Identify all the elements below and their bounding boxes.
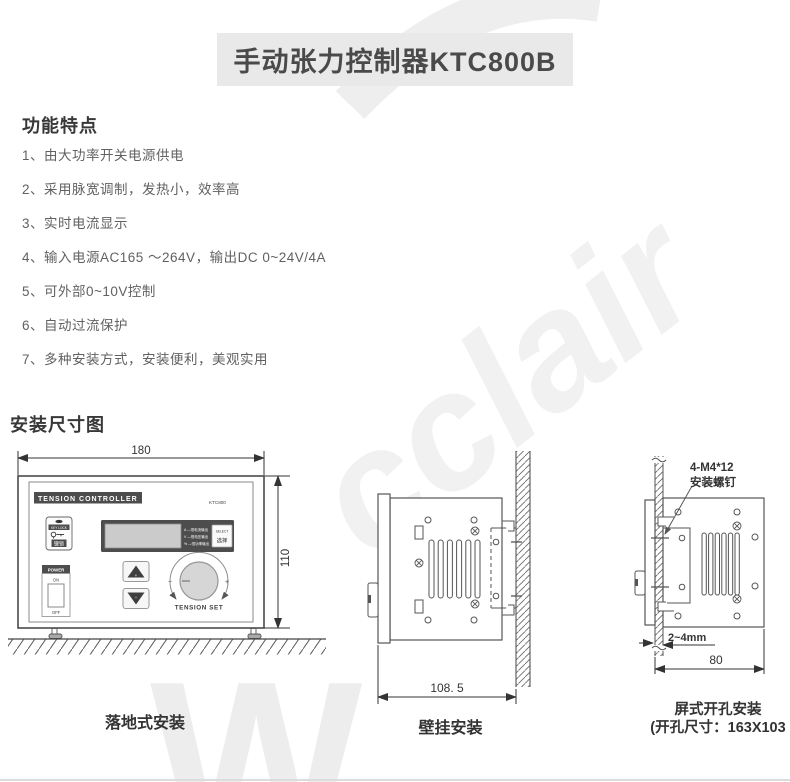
- knob-plus-label: +: [225, 579, 229, 586]
- keylock-en-label: KEY LOCK: [51, 526, 68, 530]
- feature-item: 5、可外部0~10V控制: [22, 275, 326, 309]
- page-title: 手动张力控制器KTC800B: [217, 33, 572, 86]
- bottom-divider: [0, 779, 790, 781]
- legend-power: % —恒功率输出: [184, 541, 210, 546]
- side-tab: [368, 583, 378, 617]
- screw-note-line1: 4-M4*12: [690, 462, 733, 474]
- legend-voltage: V —恒电压输出: [184, 534, 209, 539]
- feature-list: 1、由大功率开关电源供电 2、采用脉宽调制，发热小，效率高 3、实时电流显示 4…: [22, 139, 326, 377]
- down-minus-glyph: −: [135, 595, 138, 600]
- brand-label: TENSION CONTROLLER: [38, 496, 138, 503]
- legend-current: A —恒电流输出: [184, 527, 209, 532]
- features-heading: 功能特点: [22, 112, 98, 138]
- feature-item: 6、自动过流保护: [22, 309, 326, 343]
- install-heading: 安装尺寸图: [10, 411, 105, 437]
- power-switch-drawing: POWER ON OFF: [42, 565, 70, 617]
- document-content: 手动张力控制器KTC800B 功能特点 1、由大功率开关电源供电 2、采用脉宽调…: [0, 0, 790, 782]
- feet: [49, 629, 261, 639]
- wall-install-diagram: 108. 5: [356, 443, 584, 715]
- model-label: KTC800: [209, 500, 226, 505]
- front-bezel-side: [378, 494, 390, 643]
- knob-minus-label: −: [168, 579, 172, 586]
- display-assembly: A —恒电流输出 V —恒电压输出 % —恒功率输出 SELECT 选择: [101, 520, 234, 552]
- knob-label: TENSION SET: [175, 605, 224, 612]
- dim-height-label: 110: [280, 549, 292, 567]
- lcd-display: [105, 524, 181, 548]
- rocker: [48, 584, 64, 607]
- select-button-drawing: SELECT 选择: [212, 525, 232, 547]
- title-row: 手动张力控制器KTC800B: [0, 33, 790, 86]
- up-button-drawing: +: [123, 562, 149, 582]
- panel-caption: 屏式开孔安装 (开孔尺寸：163X103: [638, 702, 790, 737]
- page: cclair W 手动张力控制器KTC800B 功能特点 1、由大功率开关电源供…: [0, 0, 790, 782]
- power-label: POWER: [48, 567, 65, 572]
- dim-depth-label: 80: [709, 653, 723, 667]
- feature-item: 4、输入电源AC165 ～264V，输出DC 0~24V/4A: [22, 241, 326, 275]
- select-en-label: SELECT: [216, 530, 229, 534]
- side-tab: [635, 571, 645, 595]
- power-on-label: ON: [53, 578, 59, 583]
- device-body-side: [390, 498, 502, 640]
- floor-install-diagram: 180 110 TENSION CONTROLLER KTC800 KEY LO…: [6, 441, 336, 673]
- ground-hatching: [8, 639, 326, 655]
- panel-caption-line1: 屏式开孔安装: [638, 702, 790, 720]
- feature-item: 1、由大功率开关电源供电: [22, 139, 326, 173]
- up-plus-glyph: +: [135, 573, 138, 578]
- power-off-label: OFF: [52, 610, 61, 615]
- feature-item: 3、实时电流显示: [22, 207, 326, 241]
- screw-note-line2: 安装螺钉: [690, 475, 736, 489]
- dim-depth-label: 108. 5: [430, 681, 464, 695]
- feature-item: 7、多种安装方式，安装便利，美观实用: [22, 343, 326, 377]
- keylock-zh-label: 键锁: [54, 540, 64, 547]
- panel-caption-line2: (开孔尺寸：163X103: [638, 720, 790, 738]
- dim-width-label: 180: [131, 445, 150, 457]
- dim-depth-108: [378, 645, 516, 704]
- floor-caption: 落地式安装: [85, 709, 205, 733]
- keylock-led: [55, 520, 62, 523]
- panel-install-diagram: 4-M4*12 安装螺钉 2~4mm 80: [612, 438, 790, 720]
- dim-thickness-label: 2~4mm: [668, 632, 706, 644]
- wall-section: [516, 451, 530, 687]
- down-button-drawing: −: [123, 589, 149, 609]
- front-bezel-side: [645, 500, 655, 625]
- keylock-badge: KEY LOCK 键锁: [46, 517, 72, 550]
- select-zh-label: 选择: [217, 537, 228, 545]
- feature-item: 2、采用脉宽调制，发热小，效率高: [22, 173, 326, 207]
- wall-caption: 壁挂安装: [398, 714, 503, 738]
- device-body-side: [663, 498, 764, 627]
